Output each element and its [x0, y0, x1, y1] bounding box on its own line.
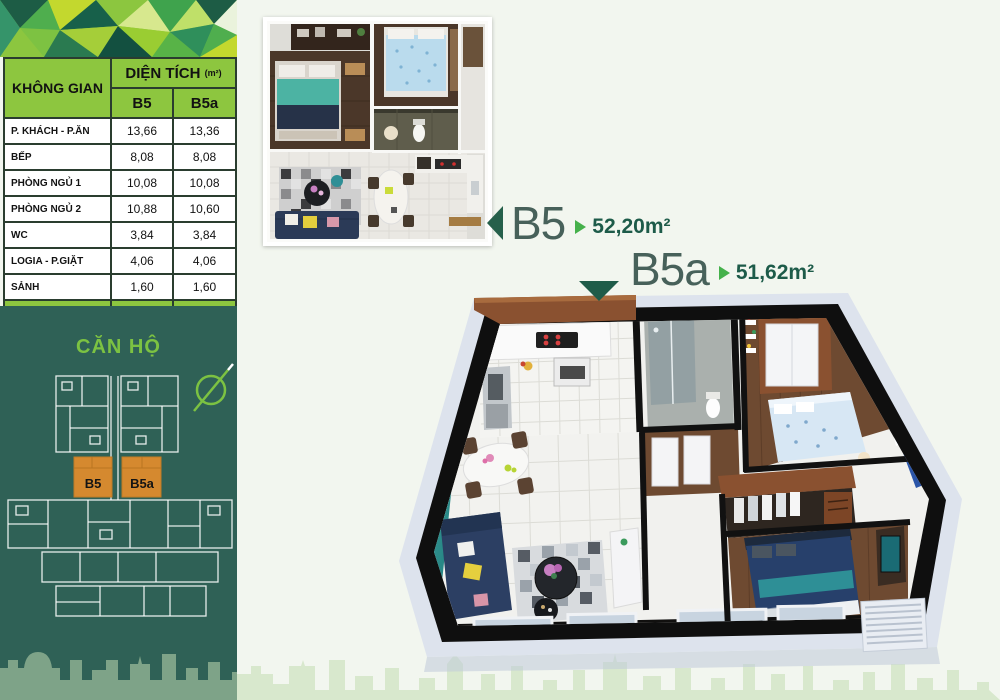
room-area-b5: 13,66: [111, 118, 173, 144]
kitchen-area: [478, 320, 638, 438]
room-area-b5a: 10,08: [173, 170, 236, 196]
right-arrow-icon: [719, 266, 730, 280]
room-label: WC: [4, 222, 111, 248]
table-row: BẾP 8,08 8,08: [4, 144, 236, 170]
room-area-b5: 3,84: [111, 222, 173, 248]
room-area-b5a: 4,06: [173, 248, 236, 274]
floorplan-3d-render: [378, 280, 978, 680]
down-arrow-icon: [579, 281, 619, 301]
space-header: KHÔNG GIAN: [4, 58, 111, 118]
room-label: PHÒNG NGỦ 2: [4, 196, 111, 222]
keyplan-unit-b5a-label: B5a: [130, 476, 155, 491]
room-label: PHÒNG NGỦ 1: [4, 170, 111, 196]
floorplate-outline: [8, 376, 232, 616]
unit-label-b5: B5 52,20m²: [487, 200, 670, 246]
louver-vent: [861, 598, 928, 651]
table-row: P. KHÁCH - P.ĂN 13,66 13,36: [4, 118, 236, 144]
plan2d-bathroom: [374, 108, 460, 152]
table-row: PHÒNG NGỦ 2 10,88 10,60: [4, 196, 236, 222]
keyplan-diagram: B5 B5a: [0, 362, 237, 622]
left-panel: KHÔNG GIAN DIỆN TÍCH (m²) B5 B5a P. KHÁC…: [0, 0, 237, 700]
room-area-b5a: 8,08: [173, 144, 236, 170]
keyplan-unit-b5-label: B5: [85, 476, 102, 491]
table-row: LOGIA - P.GIẶT 4,06 4,06: [4, 248, 236, 274]
table-row: PHÒNG NGỦ 1 10,08 10,08: [4, 170, 236, 196]
area-header: DIỆN TÍCH (m²): [111, 58, 236, 88]
unit-b5a-name: B5a: [630, 246, 709, 292]
table-row: SẢNH 1,60 1,60: [4, 274, 236, 300]
left-arrow-icon: [487, 206, 503, 240]
room-label: SẢNH: [4, 274, 111, 300]
room-label: P. KHÁCH - P.ĂN: [4, 118, 111, 144]
room-area-b5a: 3,84: [173, 222, 236, 248]
room-label: BẾP: [4, 144, 111, 170]
area-table: KHÔNG GIAN DIỆN TÍCH (m²) B5 B5a P. KHÁC…: [3, 57, 237, 328]
right-arrow-icon: [575, 220, 586, 234]
plan2d-bedroom-2: [374, 24, 460, 108]
room-area-b5: 4,06: [111, 248, 173, 274]
room-area-b5: 8,08: [111, 144, 173, 170]
floorplan-2d-render: [263, 17, 492, 246]
room-area-b5: 10,08: [111, 170, 173, 196]
column-b5: B5: [111, 88, 173, 118]
polygon-banner: [0, 0, 237, 57]
unit-b5a-area: 51,62m²: [736, 261, 814, 285]
room-area-b5: 1,60: [111, 274, 173, 300]
compass-icon: [194, 364, 233, 411]
unit-b5-area: 52,20m²: [592, 215, 670, 239]
table-row: WC 3,84 3,84: [4, 222, 236, 248]
keyplan-section: CĂN HỘ: [0, 306, 237, 700]
area-unit-label: (m²): [205, 68, 222, 78]
room-area-b5: 10,88: [111, 196, 173, 222]
unit-label-b5a: B5a 51,62m²: [630, 246, 814, 292]
column-b5a: B5a: [173, 88, 236, 118]
plan2d-entry: [460, 24, 485, 154]
bathroom-area: [644, 314, 734, 432]
area-header-label: DIỆN TÍCH: [125, 65, 200, 82]
room-area-b5a: 10,60: [173, 196, 236, 222]
unit-b5-name: B5: [511, 200, 565, 246]
room-area-b5a: 1,60: [173, 274, 236, 300]
room-label: LOGIA - P.GIẶT: [4, 248, 111, 274]
keyplan-title: CĂN HỘ: [0, 336, 237, 359]
page: KHÔNG GIAN DIỆN TÍCH (m²) B5 B5a P. KHÁC…: [0, 0, 1000, 700]
room-area-b5a: 13,36: [173, 118, 236, 144]
keyplan-skyline: [0, 638, 237, 700]
